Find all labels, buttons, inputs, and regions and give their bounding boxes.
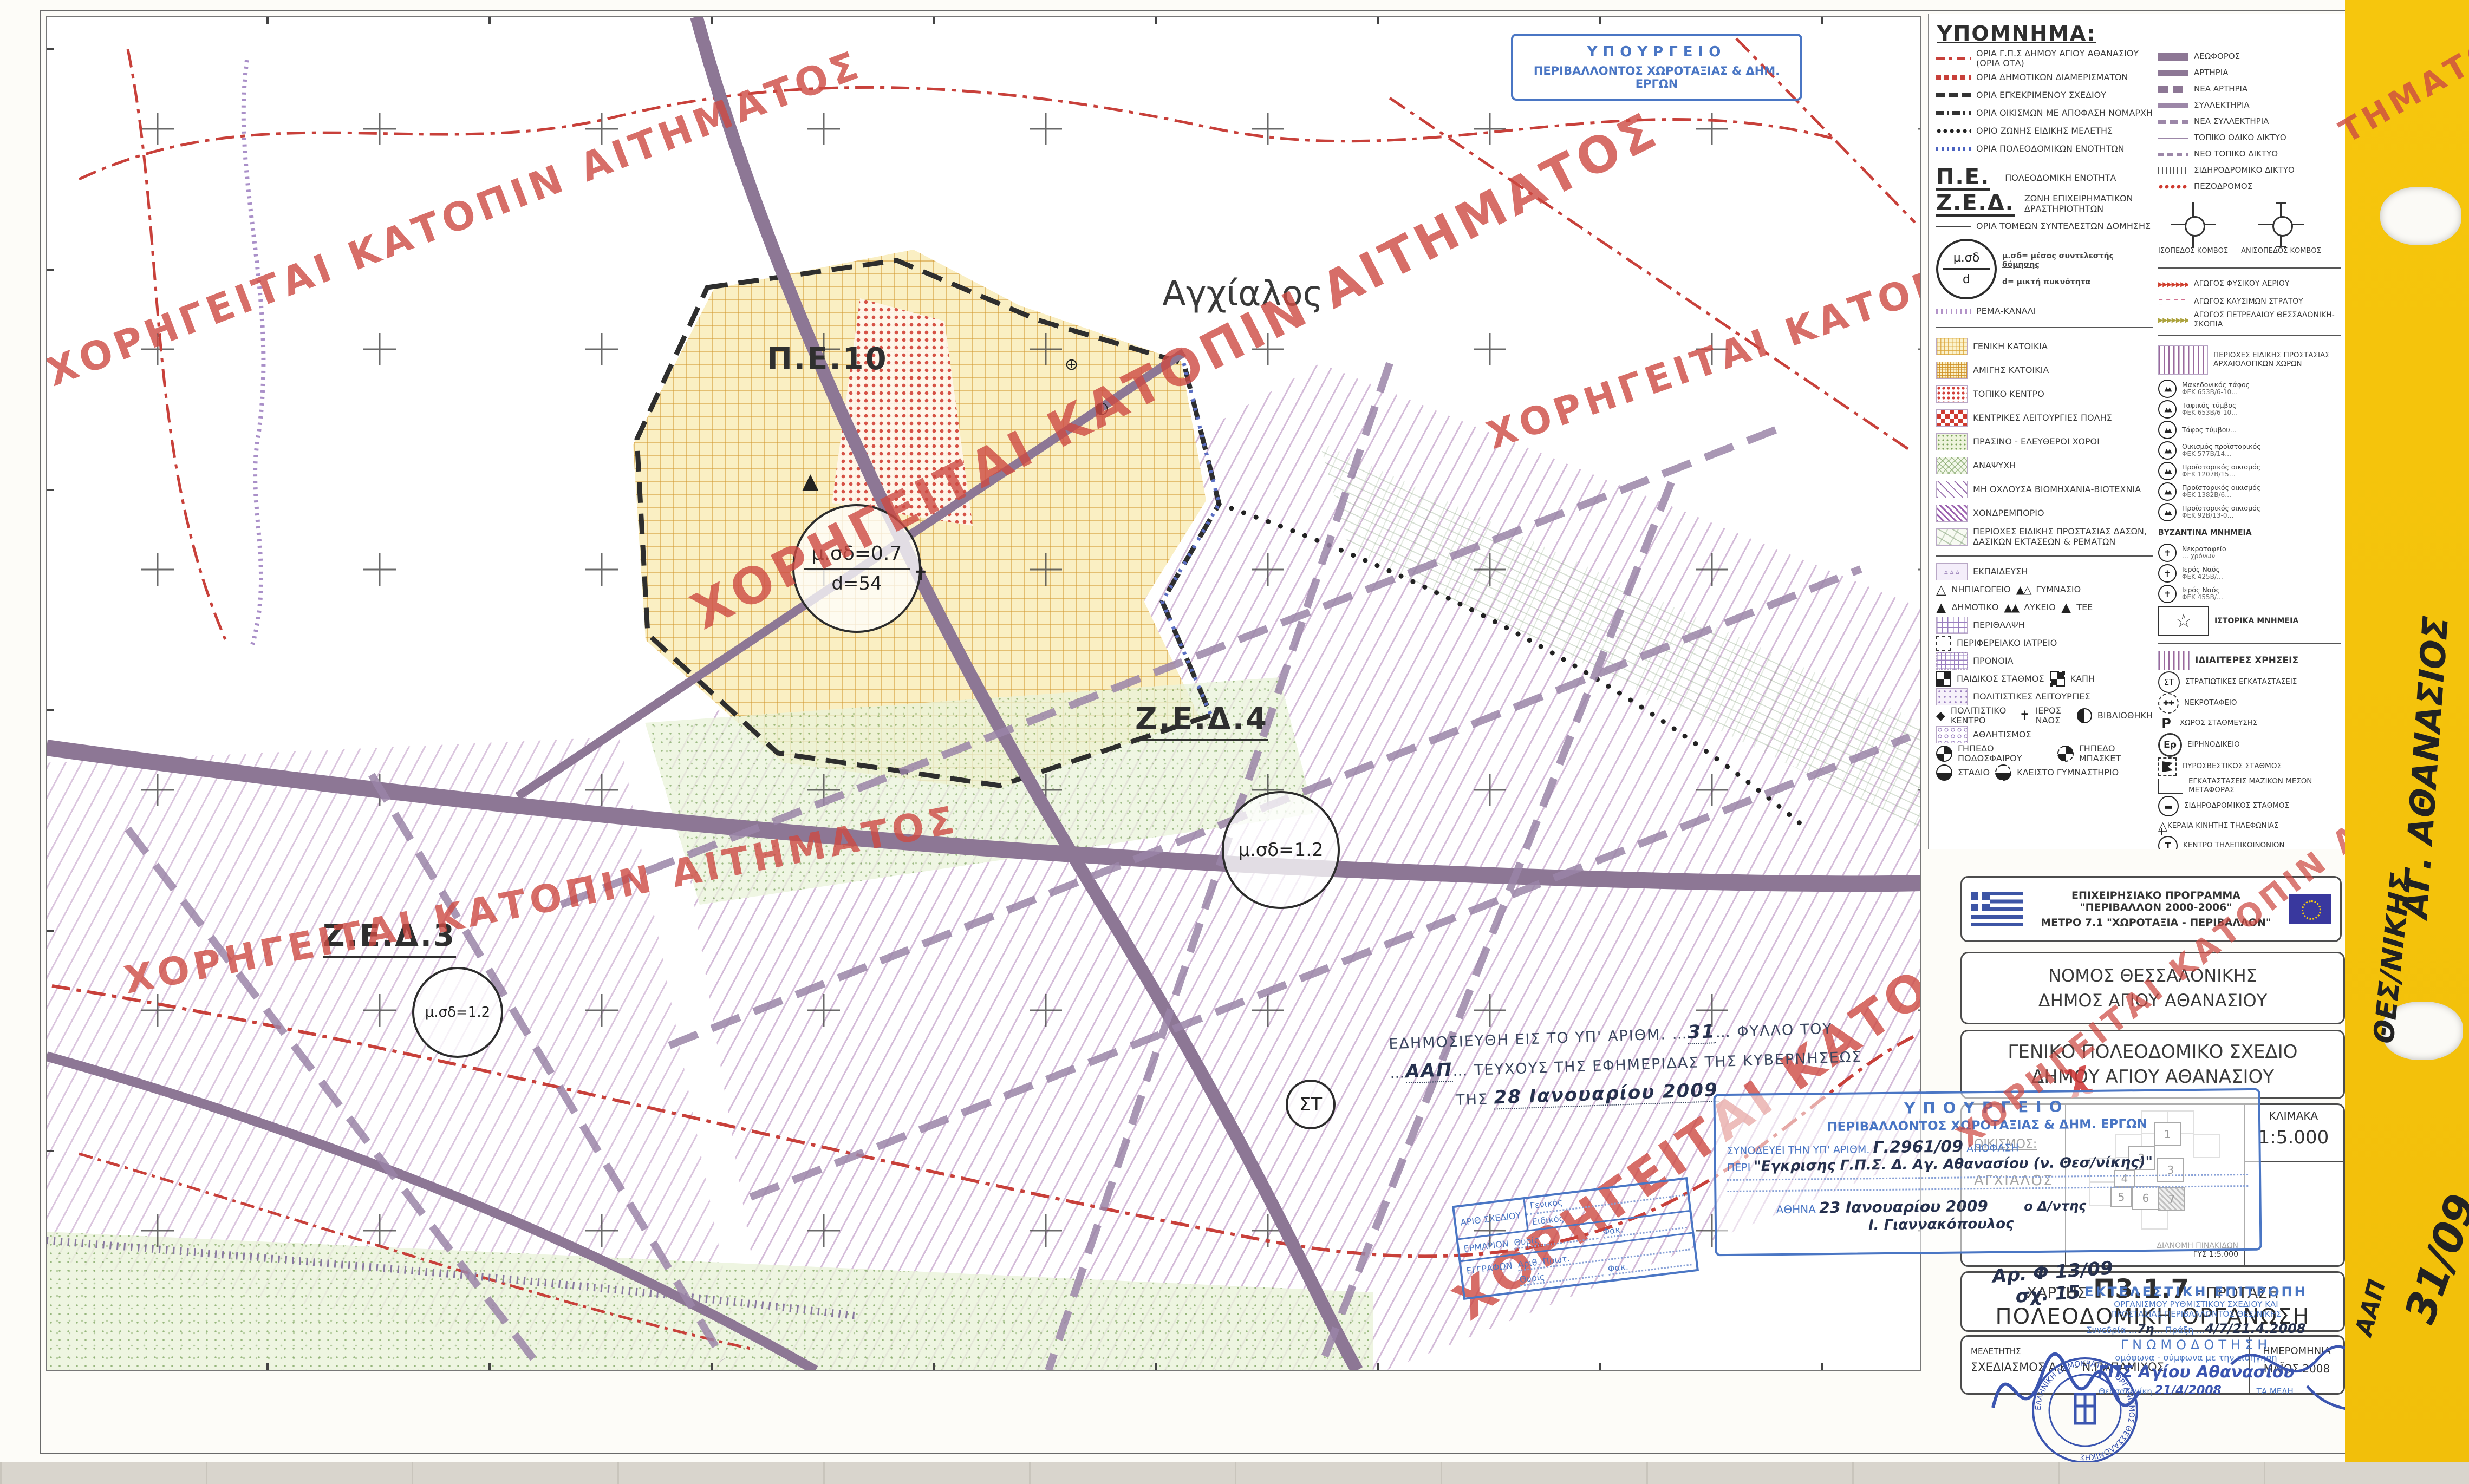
legend-item: ΧΟΝΔΡΕΜΠΟΡΙΟ — [1936, 501, 2153, 525]
legend-icon — [2016, 583, 2031, 596]
legend-item: ΑΡΤΗΡΙΑ — [2158, 65, 2341, 81]
density-circle-sample: μ.σδ d — [1936, 239, 1997, 299]
legend-label: ΕΓΚΑΤΑΣΤΑΣΕΙΣ ΜΑΖΙΚΩΝ ΜΕΣΩΝ ΜΕΤΑΦΟΡΑΣ — [2188, 777, 2341, 794]
legend-icon — [2061, 600, 2071, 615]
gazette-text: ΦΥΛΛΟ ΤΟΥ — [1737, 1021, 1833, 1041]
legend-swatch — [2158, 281, 2188, 287]
d-abbr: d — [1963, 273, 1970, 286]
decision-text: ΠΕΡΙ — [1727, 1162, 1751, 1174]
legend-swatch — [1936, 433, 1968, 450]
special-use-icon — [2158, 715, 2174, 731]
watermark-fragment: ΤΗΜΑΤΟΣ — [2333, 17, 2469, 150]
legend-label: ΚΑΠΗ — [2070, 674, 2095, 684]
legend-swatch — [2158, 138, 2188, 139]
legend-swatch — [1936, 688, 1968, 705]
legend-icon — [1936, 746, 1952, 762]
monument-fek: ΦΕΚ 92Β/13-0… — [2182, 512, 2260, 520]
legend-item: ΠΕΡΙΟΧΕΣ ΕΙΔΙΚΗΣ ΠΡΟΣΤΑΣΙΑΣ ΔΑΣΩΝ, ΔΑΣΙΚ… — [1936, 525, 2153, 549]
legend-label: ΚΛΕΙΣΤΟ ΓΥΜΝΑΣΤΗΡΙΟ — [2017, 768, 2119, 777]
legend-label: ΓΕΝΙΚΗ ΚΑΤΟΙΚΙΑ — [1973, 342, 2048, 351]
legend-icon — [1936, 764, 1952, 781]
tab-text-issue: ΑΑΠ — [2350, 1277, 2391, 1339]
monument-fek: ΦΕΚ 653Β/6-10… — [2182, 409, 2238, 417]
byzantine-icon — [2158, 544, 2177, 562]
legend-swatch — [1936, 75, 1971, 80]
legend-swatch — [1936, 563, 1968, 580]
legend-divider — [2158, 643, 2341, 644]
frame-ticks-top — [47, 17, 1920, 24]
legend-item: Ταφικός τύμβος ΦΕΚ 653Β/6-10… — [2158, 399, 2341, 420]
legend-label: ΛΥΚΕΙΟ — [2024, 603, 2056, 612]
iso-junction-block: ΙΣΟΠΕΔΟΣ ΚΟΜΒΟΣ — [2158, 202, 2228, 256]
monument-name: Προϊστορικός οικισμός — [2182, 463, 2260, 471]
legend-item: Οικισμός προϊστορικός ΦΕΚ 577Β/14… — [2158, 440, 2341, 461]
map-canvas: Αγχίαλος Π.Ε.10 Ζ.Ε.Δ.4 Ζ.Ε.Δ.3 μ.σδ=0.7… — [46, 16, 1921, 1371]
special-use-icon — [2158, 818, 2162, 835]
density-msd: μ.σδ=1.2 — [425, 1004, 490, 1021]
facility-circle-icon: ⊕ — [1065, 355, 1078, 374]
scale-value: 1:5.000 — [2258, 1127, 2329, 1148]
legend-item: ΣΤΑΔΙΟ ΚΛΕΙΣΤΟ ΓΥΜΝΑΣΤΗΡΙΟ — [1936, 763, 2153, 781]
legend-swatch — [2158, 53, 2188, 61]
legend-item: ΑΜΙΓΗΣ ΚΑΤΟΙΚΙΑ — [1936, 358, 2153, 382]
filing-label: ΕΡΜΑΡΙΟΝ — [1463, 1238, 1509, 1256]
legend-item-sectors: ΟΡΙΑ ΤΟΜΕΩΝ ΣΥΝΤΕΛΕΣΤΩΝ ΔΟΜΗΣΗΣ — [1936, 218, 2153, 236]
legend-item-pe: Π.Ε. ΠΟΛΕΟΔΟΜΙΚΗ ΕΝΟΤΗΤΑ — [1936, 166, 2153, 191]
legend-swatch — [1936, 147, 1971, 151]
legend-item-rema: ΡΕΜΑ-ΚΑΝΑΛΙ — [1936, 303, 2153, 321]
monument-icon — [2158, 503, 2177, 521]
legend-label: ΟΡΙΑ ΟΙΚΙΣΜΩΝ ΜΕ ΑΠΟΦΑΣΗ ΝΟΜΑΡΧΗ — [1976, 108, 2153, 118]
gazette-text: ΤΕΥΧΟΥΣ ΤΗΣ ΕΦΗΜΕΡΙΔΑΣ ΤΗΣ ΚΥΒΕΡΝΗΣΕΩΣ — [1474, 1049, 1862, 1079]
legend-swatch — [1936, 362, 1968, 379]
legend-label: ΠΟΛΙΤΙΣΤΙΚΟ ΚΕΝΤΡΟ — [1951, 706, 2014, 726]
legend-item: ΕΚΠΑΙΔΕΥΣΗ — [1936, 563, 2153, 581]
legend-swatch — [2158, 345, 2208, 375]
legend-item: ΣΥΛΛΕΚΤΗΡΙΑ — [2158, 97, 2341, 114]
special-use-icon — [2158, 671, 2180, 693]
byzantine-fek: ΦΕΚ 455Β/… — [2182, 594, 2223, 602]
byzantine-fek: ΦΕΚ 425Β/… — [2182, 573, 2223, 581]
legend-item: Νεκροταφείο … χρόνων — [2158, 542, 2341, 563]
legend-label: ΙΔΙΑΙΤΕΡΕΣ ΧΡΗΣΕΙΣ — [2195, 655, 2298, 666]
legend-swatch — [1936, 385, 1968, 403]
dotted-line — [1727, 1174, 2248, 1181]
legend-swatch — [1936, 652, 1968, 670]
legend-label: ΤΟΠΙΚΟ ΟΔΙΚΟ ΔΙΚΤΥΟ — [2194, 133, 2286, 142]
zone-label-zed4: Ζ.Ε.Δ.4 — [1135, 702, 1268, 741]
legend-label: ΠΕΖΟΔΡΟΜΟΣ — [2194, 182, 2252, 191]
legend-item: ΣΙΔΗΡΟΔΡΟΜΙΚΟΣ ΣΤΑΘΜΟΣ — [2158, 796, 2341, 816]
monument-icon — [2158, 421, 2177, 439]
legend-item: Προϊστορικός οικισμός ΦΕΚ 1382Β/6… — [2158, 481, 2341, 502]
legend-label: ΑΘΛΗΤΙΣΜΟΣ — [1973, 730, 2031, 740]
legend-label: ΕΙΡΗΝΟΔΙΚΕΙΟ — [2187, 741, 2240, 749]
legend-item: ΤΟΠΙΚΟ ΚΕΝΤΡΟ — [1936, 382, 2153, 406]
legend-swatch — [2158, 70, 2188, 76]
decision-text: ΣΥΝΟΔΕΥΕΙ ΤΗΝ ΥΠ' ΑΡΙΘΜ. — [1727, 1143, 1869, 1157]
legend-item: ΟΡΙΑ ΠΟΛΕΟΔΟΜΙΚΩΝ ΕΝΟΤΗΤΩΝ — [1936, 140, 2153, 158]
military-st-circle: ΣΤ — [1286, 1080, 1336, 1129]
legend-item: ΝΕΑ ΣΥΛΛΕΚΤΗΡΙΑ — [2158, 114, 2341, 130]
monument-icon — [2158, 482, 2177, 501]
divider — [1943, 268, 1990, 270]
legend-item: Μακεδονικός τάφος ΦΕΚ 653Β/6-10… — [2158, 378, 2341, 399]
legend-label: ΟΡΙΑ ΤΟΜΕΩΝ ΣΥΝΤΕΛΕΣΤΩΝ ΔΟΜΗΣΗΣ — [1976, 221, 2151, 231]
scanner-edge-strip — [0, 1462, 2469, 1484]
scale-label: ΚΛΙΜΑΚΑ — [2269, 1109, 2318, 1122]
aniso-junction-symbol — [2258, 202, 2304, 247]
legend-swatch — [1936, 226, 1971, 227]
legend-item: Προϊστορικός οικισμός ΦΕΚ 1207Β/15… — [2158, 461, 2341, 481]
legend-label: ΠΟΛΙΤΙΣΤΙΚΕΣ ΛΕΙΤΟΥΡΓΙΕΣ — [1973, 692, 2090, 702]
legend-swatch — [1936, 617, 1968, 634]
legend-item: ΚΕΝΤΡΙΚΕΣ ΛΕΙΤΟΥΡΓΙΕΣ ΠΟΛΗΣ — [1936, 406, 2153, 430]
byzantine-name: Ιερός Ναός — [2182, 586, 2223, 594]
msd-note: μ.σδ= μέσος συντελεστής δόμησης — [2002, 252, 2114, 269]
legend-item: Τάφος τύμβου… — [2158, 420, 2341, 440]
monument-name: Τάφος τύμβου… — [2182, 426, 2237, 434]
special-use-icon — [2158, 733, 2182, 757]
legend-label: ΠΕΡΙΦΕΡΕΙΑΚΟ ΙΑΤΡΕΙΟ — [1957, 638, 2057, 648]
monument-icon — [2158, 380, 2177, 398]
legend-item: ΛΕΩΦΟΡΟΣ — [2158, 49, 2341, 65]
legend-icon — [2020, 708, 2030, 723]
byzantine-icon — [2158, 564, 2177, 583]
legend-item: ΠΕΡΙΦΕΡΕΙΑΚΟ ΙΑΤΡΕΙΟ — [1936, 635, 2153, 652]
legend-label: ΠΡΑΣΙΝΟ - ΕΛΕΥΘΕΡΟΙ ΧΩΡΟΙ — [1973, 437, 2100, 447]
ministry-line1: ΥΠΟΥΡΓΕΙΟ — [1587, 44, 1727, 60]
legend-item: ΕΓΚΑΤΑΣΤΑΣΕΙΣ ΜΑΖΙΚΩΝ ΜΕΣΩΝ ΜΕΤΑΦΟΡΑΣ — [2158, 776, 2341, 796]
legend-swatch — [1936, 505, 1968, 522]
legend-item: ΟΡΙΑ ΟΙΚΙΣΜΩΝ ΜΕ ΑΠΟΦΑΣΗ ΝΟΜΑΡΧΗ — [1936, 104, 2153, 122]
density-notes: μ.σδ= μέσος συντελεστής δόμησης d= μικτή… — [2002, 252, 2153, 286]
legend-label: ΓΗΠΕΔΟ ΠΟΔΟΣΦΑΙΡΟΥ — [1958, 744, 2052, 764]
legend-right-column: ΛΕΩΦΟΡΟΣ ΑΡΤΗΡΙΑ ΝΕΑ ΑΡΤΗΡΙΑ ΣΥΛΛΕΚΤΗΡΙΑ… — [2158, 49, 2341, 849]
legend-label: ΠΟΛΕΟΔΟΜΙΚΗ ΕΝΟΤΗΤΑ — [2005, 173, 2116, 183]
legend-item: ΣΙΔΗΡΟΔΡΟΜΙΚΟ ΔΙΚΤΥΟ — [2158, 162, 2341, 179]
special-use-icon — [2158, 779, 2183, 794]
legend-label: ΑΝΑΨΥΧΗ — [1973, 461, 2016, 470]
density-circle-zed4: μ.σδ=1.2 — [1222, 791, 1340, 909]
legend-swatch — [2158, 651, 2190, 670]
legend-label: ΟΡΙΑ ΠΟΛΕΟΔΟΜΙΚΩΝ ΕΝΟΤΗΤΩΝ — [1976, 144, 2125, 154]
legend-label: ΣΙΔΗΡΟΔΡΟΜΙΚΟΣ ΣΤΑΘΜΟΣ — [2184, 802, 2289, 810]
legend-label: ΤΕΕ — [2076, 603, 2093, 612]
byzantine-title: ΒΥΖΑΝΤΙΝΑ ΜΝΗΜΕΙΑ — [2158, 524, 2341, 541]
legend-label: ΚΕΡΑΙΑ ΚΙΝΗΤΗΣ ΤΗΛΕΦΩΝΙΑΣ — [2167, 822, 2279, 831]
legend-item: ΑΓΩΓΟΣ ΠΕΤΡΕΛΑΙΟΥ ΘΕΣΣΑΛΟΝΙΚΗ-ΣΚΟΠΙΑ — [2158, 311, 2341, 329]
legend-swatch — [1936, 128, 1971, 134]
signatures — [1928, 1299, 2415, 1473]
legend-item: ΤΟΠΙΚΟ ΟΔΙΚΟ ΔΙΚΤΥΟ — [2158, 130, 2341, 146]
byzantine-name: Ιερός Ναός — [2182, 566, 2223, 573]
special-uses-header: ΙΔΙΑΙΤΕΡΕΣ ΧΡΗΣΕΙΣ — [2158, 651, 2341, 670]
legend-icon — [2077, 708, 2092, 723]
legend-label: ΓΥΜΝΑΣΙΟ — [2036, 585, 2081, 594]
legend-item: Ιερός Ναός ΦΕΚ 425Β/… — [2158, 563, 2341, 584]
zone-label-pe10: Π.Ε.10 — [767, 342, 888, 377]
legend-swatch — [1936, 57, 1971, 60]
msd-abbr: μ.σδ — [1953, 251, 1979, 265]
tab-text-number: 31/09 — [2396, 1188, 2469, 1330]
legend-label: ΖΩΝΗ ΕΠΙΧΕΙΡΗΜΑΤΙΚΩΝ ΔΡΑΣΤΗΡΙΟΤΗΤΩΝ — [2024, 194, 2153, 214]
monument-name: Οικισμός προϊστορικός — [2182, 443, 2260, 450]
legend-item: ΝΕΑ ΑΡΤΗΡΙΑ — [2158, 81, 2341, 97]
legend-label: ΙΣΤΟΡΙΚΑ ΜΝΗΜΕΙΑ — [2214, 617, 2298, 625]
legend-swatch — [2158, 86, 2188, 93]
legend-item: ΠΡΟΝΟΙΑ — [1936, 652, 2153, 670]
legend-icon — [1936, 709, 1945, 723]
legend-icon — [1936, 636, 1951, 651]
filing-label: ΑΡΙΘ ΣΧΕΔΙΟΥ — [1455, 1205, 1527, 1232]
committee-line: ΕΚΤΕΛΕΣΤΙΚΗ ΕΠΙΤΡΟΠΗ — [2034, 1284, 2359, 1299]
monument-fek: ΦΕΚ 1207Β/15… — [2182, 471, 2260, 479]
byzantine-fek: … χρόνων — [2182, 553, 2226, 560]
legend-item: ΕΙΡΗΝΟΔΙΚΕΙΟ — [2158, 733, 2341, 757]
legend-icon — [2004, 601, 2018, 614]
legend-item-junctions: ΙΣΟΠΕΔΟΣ ΚΟΜΒΟΣ ΑΝΙΣΟΠΕΔΟΣ ΚΟΜΒΟΣ — [2158, 196, 2341, 261]
legend-item: ΚΕΡΑΙΑ ΚΙΝΗΤΗΣ ΤΗΛΕΦΩΝΙΑΣ — [2158, 816, 2341, 836]
legend-item: ΠΕΖΟΔΡΟΜΟΣ — [2158, 179, 2341, 195]
church-icon: ✝ — [913, 564, 929, 585]
legend-label: ΒΙΒΛΙΟΘΗΚΗ — [2097, 711, 2153, 721]
legend-label: ΑΓΩΓΟΣ ΚΑΥΣΙΜΩΝ ΣΤΡΑΤΟΥ — [2194, 297, 2303, 306]
special-use-icon — [2158, 796, 2179, 816]
legend-item: ΠΥΡΟΣΒΕΣΤΙΚΟΣ ΣΤΑΘΜΟΣ — [2158, 757, 2341, 776]
monument-name: Προϊστορικός οικισμός — [2182, 484, 2260, 492]
monument-name: Μακεδονικός τάφος — [2182, 381, 2250, 389]
density-circle-zed3: μ.σδ=1.2 — [412, 967, 503, 1058]
legend-divider — [1936, 555, 2153, 557]
bottom-axis-labels — [46, 1376, 1920, 1457]
punch-hole — [2380, 187, 2461, 245]
legend-icon — [1936, 671, 1951, 687]
ministry-header-stamp: ΥΠΟΥΡΓΕΙΟ ΠΕΡΙΒΑΛΛΟΝΤΟΣ ΧΩΡΟΤΑΞΙΑΣ & ΔΗΜ… — [1511, 34, 1802, 101]
legend-swatch — [1936, 338, 1968, 355]
legend-swatch — [2158, 120, 2188, 124]
monument-icon — [2158, 441, 2177, 460]
star-icon: ☆ — [2158, 606, 2209, 636]
legend-label: ΠΕΡΙΟΧΕΣ ΕΙΔΙΚΗΣ ΠΡΟΣΤΑΣΙΑΣ ΔΑΣΩΝ, ΔΑΣΙΚ… — [1973, 527, 2153, 547]
legend-label: ΑΓΩΓΟΣ ΦΥΣΙΚΟΥ ΑΕΡΙΟΥ — [2194, 279, 2290, 288]
legend-label: ΠΕΡΙΟΧΕΣ ΕΙΔΙΚΗΣ ΠΡΟΣΤΑΣΙΑΣ ΑΡΧΑΙΟΛΟΓΙΚΩ… — [2213, 351, 2341, 368]
legend-swatch — [2158, 317, 2188, 323]
frame-ticks-left — [47, 17, 54, 1370]
d-note: d= μικτή πυκνότητα — [2002, 278, 2090, 286]
density-d: d=54 — [831, 573, 882, 594]
legend-label: ΝΕΑ ΣΥΛΛΕΚΤΗΡΙΑ — [2194, 117, 2269, 126]
legend-swatch — [1936, 528, 1968, 546]
decision-signatory: Ι. Γιαννακόπουλος — [1868, 1213, 2249, 1233]
legend-left-column: ΟΡΙΑ Γ.Π.Σ ΔΗΜΟΥ ΑΓΙΟΥ ΑΘΑΝΑΣΙΟΥ (ΟΡΙΑ Ο… — [1936, 49, 2153, 781]
legend-label: ΜΗ ΟΧΛΟΥΣΑ ΒΙΟΜΗΧΑΝΙΑ-ΒΙΟΤΕΧΝΙΑ — [1973, 485, 2141, 494]
legend-label: ΚΕΝΤΡΟ ΤΗΛΕΠΙΚΟΙΝΩΝΙΩΝ — [2183, 841, 2284, 849]
legend-item: ΝΕΟ ΤΟΠΙΚΟ ΔΙΚΤΥΟ — [2158, 146, 2341, 162]
decision-role: ο Δ/ντης — [2024, 1198, 2086, 1214]
legend-item: ΑΓΩΓΟΣ ΚΑΥΣΙΜΩΝ ΣΤΡΑΤΟΥ — [2158, 293, 2341, 311]
legend-label: ΙΣΟΠΕΔΟΣ ΚΟΜΒΟΣ — [2158, 247, 2228, 256]
filing-label: ΕΓΓΡΑΦΩΝ — [1466, 1260, 1515, 1293]
legend-label: ΑΜΙΓΗΣ ΚΑΤΟΙΚΙΑ — [1973, 365, 2049, 375]
legend-label: ΧΟΝΔΡΕΜΠΟΡΙΟ — [1973, 508, 2044, 518]
legend-divider — [1936, 327, 2153, 328]
legend-item: ΠΟΛΙΤΙΣΤΙΚΟ ΚΕΝΤΡΟ ΙΕΡΟΣ ΝΑΟΣ ΒΙΒΛΙΟΘΗΚΗ — [1936, 706, 2153, 726]
yellow-folder-tab: ΤΗΜΑΤΟΣ ΑΓ. ΑΘΑΝΑΣΙΟΣ ΘΕΣ/ΝΙΚΗΣ 31/09 ΑΑ… — [2345, 0, 2469, 1484]
special-use-icon — [2158, 693, 2179, 714]
legend-item-archaeology: ΠΕΡΙΟΧΕΣ ΕΙΔΙΚΗΣ ΠΡΟΣΤΑΣΙΑΣ ΑΡΧΑΙΟΛΟΓΙΚΩ… — [2158, 343, 2341, 377]
legend-label: ΣΥΛΛΕΚΤΗΡΙΑ — [2194, 101, 2250, 110]
legend-item: ΠΕΡΙΘΑΛΨΗ — [1936, 617, 2153, 635]
legend-swatch — [2158, 184, 2188, 189]
legend-label: ΟΡΙΑ ΔΗΜΟΤΙΚΩΝ ΔΙΑΜΕΡΙΣΜΑΤΩΝ — [1976, 73, 2128, 82]
legend-swatch — [1936, 111, 1971, 115]
monument-fek: ΦΕΚ 1382Β/6… — [2182, 492, 2260, 499]
legend-item: Ιερός Ναός ΦΕΚ 455Β/… — [2158, 584, 2341, 604]
byzantine-icon — [2158, 585, 2177, 603]
legend-label: ΠΑΙΔΙΚΟΣ ΣΤΑΘΜΟΣ — [1957, 674, 2044, 684]
legend-swatch — [1936, 481, 1968, 498]
legend-item: ΠΟΛΙΤΙΣΤΙΚΕΣ ΛΕΙΤΟΥΡΓΙΕΣ — [1936, 688, 2153, 706]
aniso-junction-block: ΑΝΙΣΟΠΕΔΟΣ ΚΟΜΒΟΣ — [2241, 202, 2321, 256]
gazette-issue: ΑΑΠ — [1405, 1059, 1454, 1083]
legend-label: ΡΕΜΑ-ΚΑΝΑΛΙ — [1976, 306, 2036, 316]
legend-label: ΠΡΟΝΟΙΑ — [1973, 656, 2014, 666]
legend-item: ΟΡΙΑ ΕΓΚΕΚΡΙΜΕΝΟΥ ΣΧΕΔΙΟΥ — [1936, 87, 2153, 104]
legend-swatch — [1936, 726, 1968, 743]
signature-scribble — [1993, 1354, 2139, 1408]
legend-label: ΧΩΡΟΣ ΣΤΑΘΜΕΥΣΗΣ — [2180, 719, 2257, 728]
legend-label: ΟΡΙΑ Γ.Π.Σ ΔΗΜΟΥ ΑΓΙΟΥ ΑΘΑΝΑΣΙΟΥ (ΟΡΙΑ Ο… — [1976, 49, 2153, 69]
monument-name: Ταφικός τύμβος — [2182, 402, 2238, 409]
legend-item: ΓΕΝΙΚΗ ΚΑΤΟΙΚΙΑ — [1936, 335, 2153, 358]
legend-item: ΜΗ ΟΧΛΟΥΣΑ ΒΙΟΜΗΧΑΝΙΑ-ΒΙΟΤΕΧΝΙΑ — [1936, 478, 2153, 501]
legend-item-historic: ☆ ΙΣΤΟΡΙΚΑ ΜΝΗΜΕΙΑ — [2158, 605, 2341, 637]
legend-item: ΟΡΙΑ Γ.Π.Σ ΔΗΜΟΥ ΑΓΙΟΥ ΑΘΑΝΑΣΙΟΥ (ΟΡΙΑ Ο… — [1936, 49, 2153, 69]
legend-icon — [1936, 582, 1946, 597]
legend-swatch — [2158, 103, 2188, 108]
legend-item: ΝΗΠΙΑΓΩΓΕΙΟ ΓΥΜΝΑΣΙΟ — [1936, 581, 2153, 599]
legend-label: ΝΕΚΡΟΤΑΦΕΙΟ — [2184, 699, 2237, 708]
monument-icon — [2158, 400, 2177, 419]
legend-item: ΧΩΡΟΣ ΣΤΑΘΜΕΥΣΗΣ — [2158, 714, 2341, 733]
legend-item: ΠΑΙΔΙΚΟΣ ΣΤΑΘΜΟΣ ΚΑΠΗ — [1936, 670, 2153, 688]
legend-item: ΑΝΑΨΥΧΗ — [1936, 454, 2153, 478]
legend-swatch — [1936, 309, 1971, 314]
legend-label: ΔΗΜΟΤΙΚΟ — [1951, 603, 1998, 612]
pe-abbreviation: Π.Ε. — [1936, 166, 1990, 191]
legend-swatch — [2158, 153, 2188, 156]
legend-label: ΝΕΟ ΤΟΠΙΚΟ ΔΙΚΤΥΟ — [2194, 149, 2278, 159]
legend-icon — [1936, 600, 1946, 615]
zed-abbreviation: Ζ.Ε.Δ. — [1936, 192, 2015, 217]
decision-date: 23 Ιανουαρίου 2009 — [1819, 1197, 1988, 1217]
legend-swatch — [2158, 167, 2188, 174]
legend-item: ΑΓΩΓΟΣ ΦΥΣΙΚΟΥ ΑΕΡΙΟΥ — [2158, 275, 2341, 293]
legend-item: ΟΡΙΑ ΔΗΜΟΤΙΚΩΝ ΔΙΑΜΕΡΙΣΜΑΤΩΝ — [1936, 69, 2153, 87]
legend-label: ΝΗΠΙΑΓΩΓΕΙΟ — [1951, 585, 2010, 594]
legend-item: ΟΡΙΟ ΖΩΝΗΣ ΕΙΔΙΚΗΣ ΜΕΛΕΤΗΣ — [1936, 122, 2153, 140]
legend-label: ΙΕΡΟΣ ΝΑΟΣ — [2036, 706, 2071, 726]
legend-label: ΠΕΡΙΘΑΛΨΗ — [1973, 620, 2025, 630]
legend-divider — [2158, 335, 2341, 336]
legend-item: ΑΘΛΗΤΙΣΜΟΣ — [1936, 726, 2153, 744]
legend-label: ΑΓΩΓΟΣ ΠΕΤΡΕΛΑΙΟΥ ΘΕΣΣΑΛΟΝΙΚΗ-ΣΚΟΠΙΑ — [2194, 311, 2341, 328]
legend-swatch — [1936, 457, 1968, 474]
monument-fek: ΦΕΚ 653Β/6-10… — [2182, 389, 2250, 396]
left-axis-labels — [0, 16, 43, 1370]
legend-label: ΓΗΠΕΔΟ ΜΠΑΣΚΕΤ — [2079, 744, 2153, 764]
legend-label: ΣΤΡΑΤΙΩΤΙΚΕΣ ΕΓΚΑΤΑΣΤΑΣΕΙΣ — [2185, 678, 2297, 687]
greek-flag — [1971, 892, 2023, 926]
special-use-icon — [2158, 757, 2177, 776]
gazette-text: ΤΗΣ — [1456, 1091, 1489, 1109]
legend-label: ΚΕΝΤΡΙΚΕΣ ΛΕΙΤΟΥΡΓΙΕΣ ΠΟΛΗΣ — [1973, 413, 2112, 423]
legend-swatch — [2158, 299, 2188, 305]
special-use-icon — [2158, 836, 2178, 849]
legend-label: ΟΡΙΑ ΕΓΚΕΚΡΙΜΕΝΟΥ ΣΧΕΔΙΟΥ — [1976, 90, 2106, 100]
gazette-text: ΕΔΗΜΟΣΙΕΥΘΗ ΕΙΣ ΤΟ ΥΠ' ΑΡΙΘΜ. — [1389, 1026, 1667, 1052]
dotted-line — [1727, 1185, 2248, 1192]
legend-divider — [2158, 267, 2341, 269]
legend-item: ΣΤΡΑΤΙΩΤΙΚΕΣ ΕΓΚΑΤΑΣΤΑΣΕΙΣ — [2158, 671, 2341, 693]
legend-label: ΑΝΙΣΟΠΕΔΟΣ ΚΟΜΒΟΣ — [2241, 247, 2321, 256]
legend-swatch — [1936, 409, 1968, 427]
legend-label: ΟΡΙΟ ΖΩΝΗΣ ΕΙΔΙΚΗΣ ΜΕΛΕΤΗΣ — [1976, 126, 2113, 136]
monument-name: Προϊστορικός οικισμός — [2182, 505, 2260, 512]
monument-fek: ΦΕΚ 577Β/14… — [2182, 450, 2260, 458]
legend-label: ΑΡΤΗΡΙΑ — [2194, 68, 2228, 77]
decision-number: Γ.2961/09 — [1873, 1137, 1963, 1157]
legend-item: ΝΕΚΡΟΤΑΦΕΙΟ — [2158, 693, 2341, 714]
legend-label: ΕΚΠΑΙΔΕΥΣΗ — [1973, 567, 2028, 577]
legend-item: ΠΡΑΣΙΝΟ - ΕΛΕΥΘΕΡΟΙ ΧΩΡΟΙ — [1936, 430, 2153, 454]
legend-label: ΤΟΠΙΚΟ ΚΕΝΤΡΟ — [1973, 389, 2044, 399]
decision-subject: "Εγκρισης Γ.Π.Σ. Δ. Αγ. Αθανασίου (ν. Θε… — [1754, 1154, 2153, 1175]
legend-label: ΠΥΡΟΣΒΕΣΤΙΚΟΣ ΣΤΑΘΜΟΣ — [2182, 762, 2282, 771]
density-msd: μ.σδ=1.2 — [1238, 839, 1323, 861]
monument-icon — [2158, 462, 2177, 480]
frame-ticks-bottom — [47, 1363, 1920, 1370]
scanned-urban-plan-sheet: Αγχίαλος Π.Ε.10 Ζ.Ε.Δ.4 Ζ.Ε.Δ.3 μ.σδ=0.7… — [0, 0, 2469, 1484]
legend-title: ΥΠΟΜΝΗΜΑ: — [1937, 22, 2096, 45]
legend-icon — [2057, 746, 2074, 762]
legend-label: ΣΤΑΔΙΟ — [1958, 768, 1990, 777]
legend-item: Προϊστορικός οικισμός ΦΕΚ 92Β/13-0… — [2158, 502, 2341, 522]
legend-icon — [1995, 764, 2011, 781]
legend-label: ΝΕΑ ΑΡΤΗΡΙΑ — [2194, 84, 2247, 94]
legend-icon — [2050, 671, 2065, 687]
gazette-number: 31 — [1688, 1021, 1716, 1044]
school-triangle-icon: ▲ — [802, 469, 819, 494]
legend-item: ΔΗΜΟΤΙΚΟ ΛΥΚΕΙΟ ΤΕΕ — [1936, 599, 2153, 617]
legend-item-density: μ.σδ d μ.σδ= μέσος συντελεστής δόμησης d… — [1936, 237, 2153, 302]
legend-item-zed: Ζ.Ε.Δ. ΖΩΝΗ ΕΠΙΧΕΙΡΗΜΑΤΙΚΩΝ ΔΡΑΣΤΗΡΙΟΤΗΤ… — [1936, 192, 2153, 217]
legend-swatch — [1936, 93, 1971, 97]
iso-junction-symbol — [2171, 202, 2216, 247]
legend-item: ΓΗΠΕΔΟ ΠΟΔΟΣΦΑΙΡΟΥ ΓΗΠΕΔΟ ΜΠΑΣΚΕΤ — [1936, 744, 2153, 764]
st-label: ΣΤ — [1299, 1094, 1322, 1115]
byzantine-name: Νεκροταφείο — [2182, 545, 2226, 553]
ministry-line2: ΠΕΡΙΒΑΛΛΟΝΤΟΣ ΧΩΡΟΤΑΞΙΑΣ & ΔΗΜ. ΕΡΓΩΝ — [1513, 64, 1800, 90]
legend-label: ΛΕΩΦΟΡΟΣ — [2194, 52, 2240, 61]
legend-label: ΣΙΔΗΡΟΔΡΟΜΙΚΟ ΔΙΚΤΥΟ — [2194, 166, 2295, 175]
decision-city: ΑΘΗΝΑ — [1776, 1202, 1816, 1216]
legend-panel: ΥΠΟΜΝΗΜΑ: ΟΡΙΑ Γ.Π.Σ ΔΗΜΟΥ ΑΓΙΟΥ ΑΘΑΝΑΣΙ… — [1928, 14, 2347, 849]
